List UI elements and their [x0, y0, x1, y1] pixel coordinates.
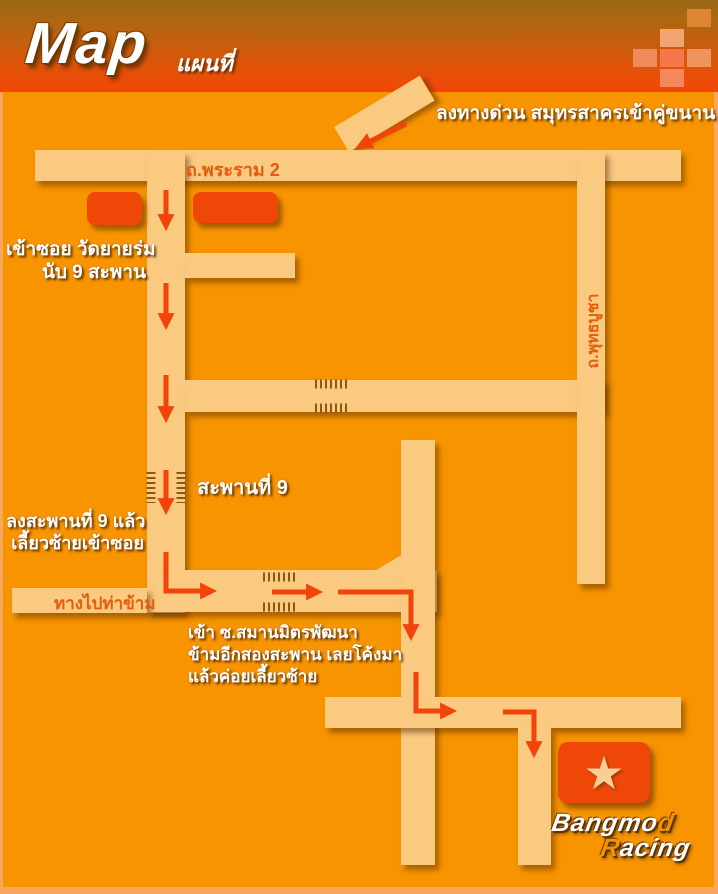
- road-soi-samanmit: [401, 440, 435, 865]
- checker-square-icon: [687, 9, 711, 27]
- brand-text: acing: [618, 834, 693, 862]
- label-after-bridge: ลงสะพานที่ 9 แล้ว เลี้ยวซ้ายเข้าซอย: [6, 510, 144, 554]
- brand-text: d: [656, 809, 677, 837]
- brand-racing: Racing: [598, 834, 692, 863]
- label-bridge-9: สะพานที่ 9: [197, 477, 288, 500]
- label-line: ข้ามอีกสองสะพาน เลยโค้งมา: [188, 644, 402, 666]
- label-road-phutthabucha: ถ.พุทธบูชา: [581, 271, 599, 391]
- frame-border-left: [0, 92, 3, 894]
- label-line: เข้า ซ.สมานมิตรพัฒนา: [188, 622, 402, 644]
- road-soi-wat-yai-rom: [147, 152, 185, 613]
- label-road-rama2: ถ.พระราม 2: [186, 155, 280, 184]
- brand-text: Bangmo: [550, 809, 661, 837]
- road-junction-east: [147, 570, 437, 612]
- label-line: เลี้ยวซ้ายเข้าซอย: [6, 532, 144, 554]
- road-side-stub: [185, 253, 295, 278]
- checker-pattern: [0, 0, 718, 92]
- destination-marker: ★: [558, 742, 650, 803]
- building-block-icon: [193, 192, 278, 223]
- star-icon: ★: [583, 750, 624, 796]
- label-soi-samanmit-directions: เข้า ซ.สมานมิตรพัฒนา ข้ามอีกสองสะพาน เลย…: [188, 622, 402, 688]
- building-block-icon: [87, 192, 142, 225]
- label-road-tha-kham: ทางไปท่าข้าม: [54, 590, 156, 617]
- label-line: เข้าซอย วัดยายร่ม: [6, 238, 146, 261]
- frame-border-bottom: [0, 887, 718, 894]
- map-page: Map แผนที่: [0, 0, 718, 894]
- checker-square-icon: [660, 29, 684, 47]
- road-cross-street: [185, 380, 605, 412]
- road-bottom-street: [325, 697, 681, 728]
- label-expressway-exit: ลงทางด่วน สมุทรสาครเข้าคู่ขนาน: [436, 102, 715, 125]
- checker-square-icon: [660, 49, 684, 67]
- road-destination-soi: [518, 728, 551, 865]
- checker-square-icon: [633, 49, 657, 67]
- header-banner: Map แผนที่: [0, 0, 718, 92]
- checker-square-icon: [687, 49, 711, 67]
- checker-square-icon: [660, 69, 684, 87]
- label-line: นับ 9 สะพาน: [6, 261, 146, 284]
- label-line: ลงสะพานที่ 9 แล้ว: [6, 510, 144, 532]
- label-soi-entry: เข้าซอย วัดยายร่ม นับ 9 สะพาน: [6, 238, 146, 284]
- frame-border-right: [714, 92, 718, 894]
- label-line: แล้วค่อยเลี้ยวซ้าย: [188, 666, 402, 688]
